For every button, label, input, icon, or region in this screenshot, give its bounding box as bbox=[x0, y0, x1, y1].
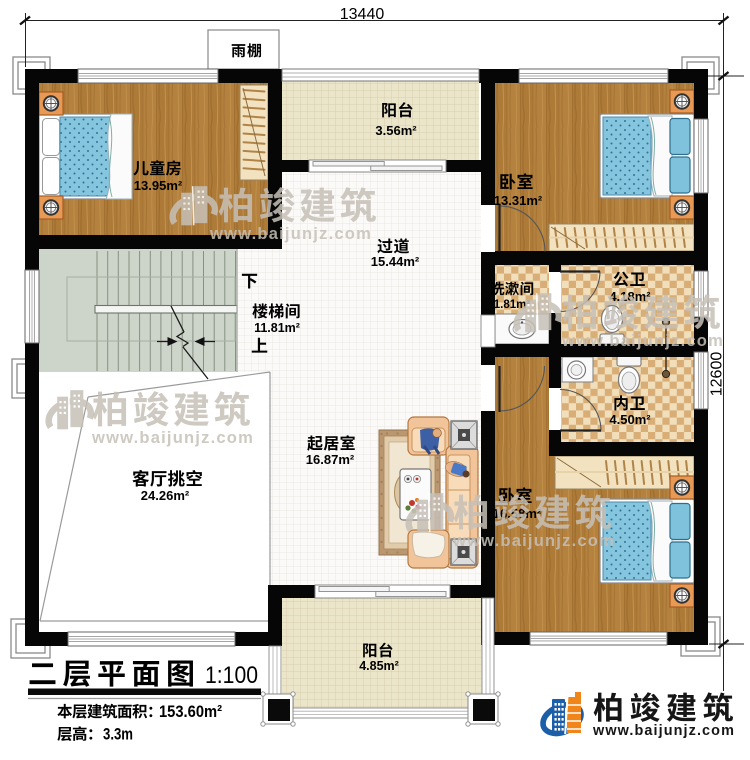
svg-text:16.87m²: 16.87m² bbox=[306, 452, 355, 467]
svg-text:13.95m²: 13.95m² bbox=[134, 178, 183, 193]
svg-text:www.baijunjz.com: www.baijunjz.com bbox=[592, 723, 735, 739]
svg-text:3.3m: 3.3m bbox=[103, 726, 133, 744]
svg-text:3.56m²: 3.56m² bbox=[375, 123, 417, 138]
svg-text:4.85m²: 4.85m² bbox=[359, 659, 399, 673]
svg-text:24.26m²: 24.26m² bbox=[141, 488, 190, 503]
svg-text:15.44m²: 15.44m² bbox=[371, 254, 420, 269]
svg-text:11.81m²: 11.81m² bbox=[254, 321, 300, 335]
svg-text:1:100: 1:100 bbox=[205, 662, 258, 689]
svg-text:153.60m²: 153.60m² bbox=[159, 703, 222, 721]
svg-text:www.baijunjz.com: www.baijunjz.com bbox=[209, 225, 372, 243]
svg-text:13.31m²: 13.31m² bbox=[494, 193, 543, 208]
svg-text:www.baijunjz.com: www.baijunjz.com bbox=[452, 532, 615, 550]
svg-text:www.baijunjz.com: www.baijunjz.com bbox=[91, 429, 254, 447]
svg-text:13440: 13440 bbox=[340, 6, 385, 23]
svg-text:www.baijunjz.com: www.baijunjz.com bbox=[561, 332, 724, 350]
svg-text:4.50m²: 4.50m² bbox=[609, 412, 651, 427]
svg-text:12600: 12600 bbox=[709, 352, 726, 397]
